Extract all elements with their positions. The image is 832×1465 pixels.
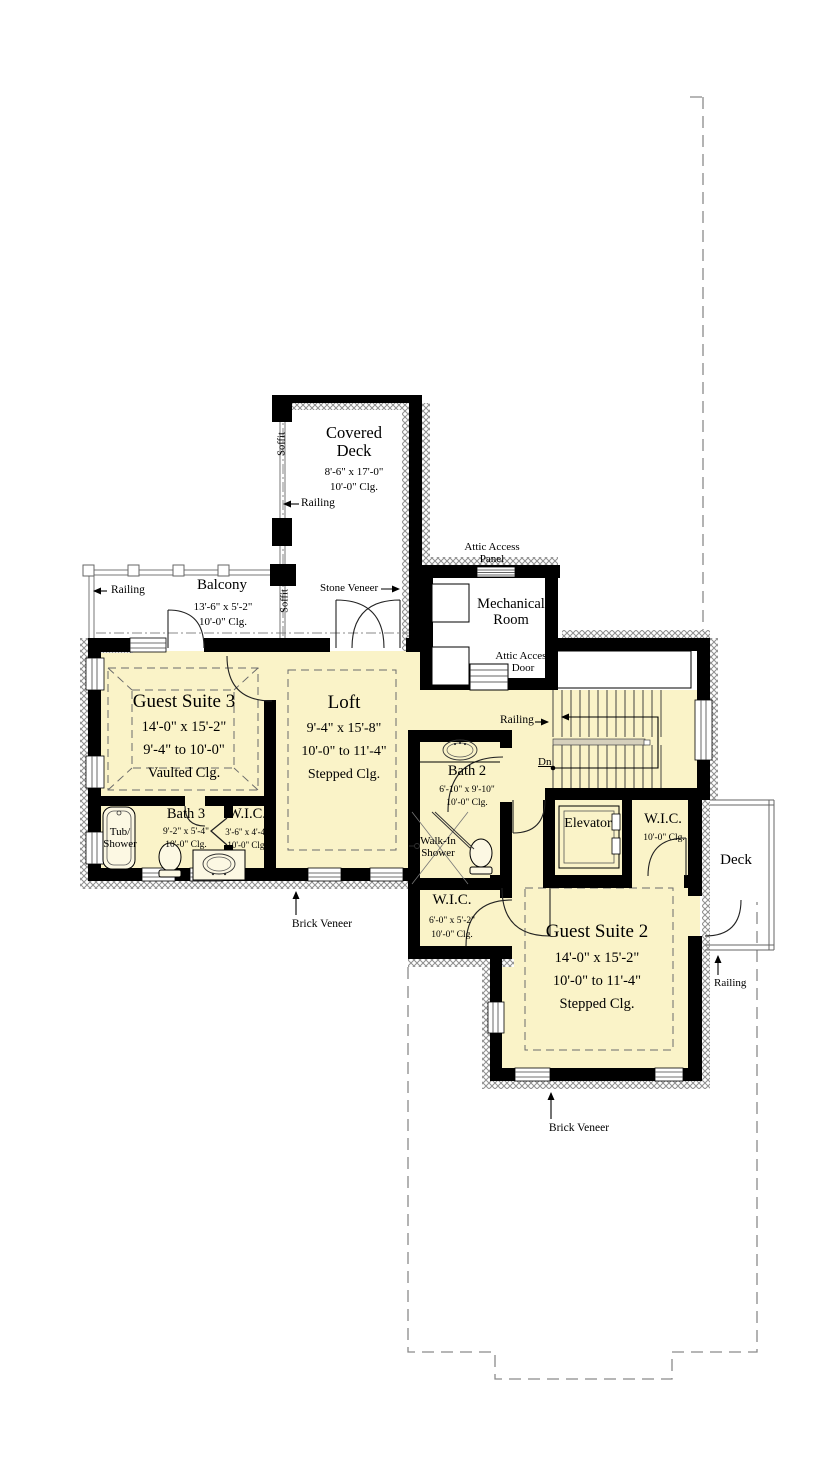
bath-2-dims: 6'-10" x 9'-10" (439, 785, 495, 796)
soffit-label-3: Soffit (280, 589, 291, 613)
floor-plan: Covered Deck 8'-6" x 17'-0" 10'-0" Clg. … (0, 0, 832, 1465)
stone-veneer-label: Stone Veneer (320, 582, 378, 594)
guest-suite-2-ceiling: Stepped Clg. (560, 996, 635, 1012)
covered-deck-dims: 8'-6" x 17'-0" (325, 466, 384, 478)
railing-label-stairs: Railing (500, 714, 534, 727)
room-label-wic-bath-3: W.I.C. (228, 806, 266, 822)
window (86, 756, 104, 788)
wic-bath-3-ceiling: 10'-0" Clg. (227, 840, 266, 850)
attic-access-panel-symbol (477, 567, 515, 577)
door-deck (705, 900, 741, 936)
room-label-wic-hall: W.I.C. (432, 892, 471, 909)
window (308, 868, 341, 881)
floor-plan-drawing (0, 0, 832, 1465)
guest-suite-3-dims: 14'-0" x 15'-2" (142, 719, 227, 735)
window (695, 700, 712, 760)
wic-hall-dims: 6'-0" x 5'-2" (429, 916, 475, 927)
stair-rail-band (553, 739, 645, 745)
toilet-bath-2 (470, 839, 492, 874)
room-label-deck: Deck (720, 852, 752, 869)
walk-in-shower-label: Walk-In Shower (420, 835, 456, 860)
brick-veneer-label-right: Brick Veneer (549, 1122, 609, 1135)
doors-loft-covered-deck (336, 600, 400, 648)
window (86, 658, 104, 690)
room-label-guest-suite-2: Guest Suite 2 (546, 921, 648, 942)
room-label-guest-suite-3: Guest Suite 3 (133, 691, 235, 712)
attic-access-panel-label: Attic Access Panel (464, 541, 519, 566)
window (515, 1068, 550, 1081)
vanity-bath-3 (193, 850, 245, 880)
covered-deck-ceiling: 10'-0" Clg. (330, 481, 378, 493)
guest-suite-2-dims: 14'-0" x 15'-2" (555, 950, 640, 966)
room-label-covered-deck: Covered Deck (326, 424, 382, 461)
floor-area (101, 651, 700, 1080)
railing-label-deck: Railing (714, 977, 746, 989)
window (130, 638, 166, 652)
bath-3-dims: 9'-2" x 5'-4" (163, 827, 209, 838)
window (86, 832, 104, 864)
room-label-wic-guest-2: W.I.C. (644, 811, 682, 827)
room-label-balcony: Balcony (197, 577, 247, 594)
guest-suite-3-ceiling: Vaulted Clg. (148, 765, 221, 781)
guest-suite-3-height: 9'-4" to 10'-0" (143, 742, 225, 758)
bath-3-ceiling: 10'-0" Clg. (165, 840, 206, 851)
window (370, 868, 403, 881)
wic-bath-3-dims: 3'-6" x 4'-4" (225, 827, 269, 837)
room-label-bath-2: Bath 2 (448, 763, 486, 779)
room-label-loft: Loft (328, 692, 361, 713)
soffit-label-2: Soffit (277, 520, 288, 544)
wic-guest-2-ceiling: 10'-0" Clg. (643, 833, 684, 844)
loft-height: 10'-0" to 11'-4" (301, 744, 386, 760)
tub-shower-label: Tub/ Shower (103, 826, 137, 851)
loft-dims: 9'-4" x 15'-8" (307, 721, 382, 737)
room-label-bath-3: Bath 3 (167, 806, 205, 822)
soffit-label-1: Soffit (277, 432, 288, 456)
deck-railing (705, 800, 774, 950)
attic-access-door-label: Attic Access Door (495, 650, 550, 675)
loft-ceiling: Stepped Clg. (308, 767, 380, 783)
railing-label-covered-deck: Railing (301, 497, 335, 510)
window (655, 1068, 683, 1081)
stair-opening (557, 651, 691, 688)
railing-label-balcony: Railing (111, 584, 145, 597)
brick-veneer-label-left: Brick Veneer (292, 918, 352, 931)
room-label-elevator: Elevator (564, 816, 611, 832)
stairs-down-label: Dn (538, 756, 551, 768)
balcony-ceiling: 10'-0" Clg. (199, 616, 247, 628)
guest-suite-2-height: 10'-0" to 11'-4" (553, 973, 641, 989)
balcony-dims: 13'-6" x 5'-2" (194, 601, 253, 613)
window (488, 1002, 504, 1033)
wic-hall-ceiling: 10'-0" Clg. (431, 930, 472, 941)
bath-2-ceiling: 10'-0" Clg. (446, 798, 487, 809)
mechanical-equipment (432, 584, 469, 685)
room-label-mechanical: Mechanical Room (477, 596, 545, 628)
